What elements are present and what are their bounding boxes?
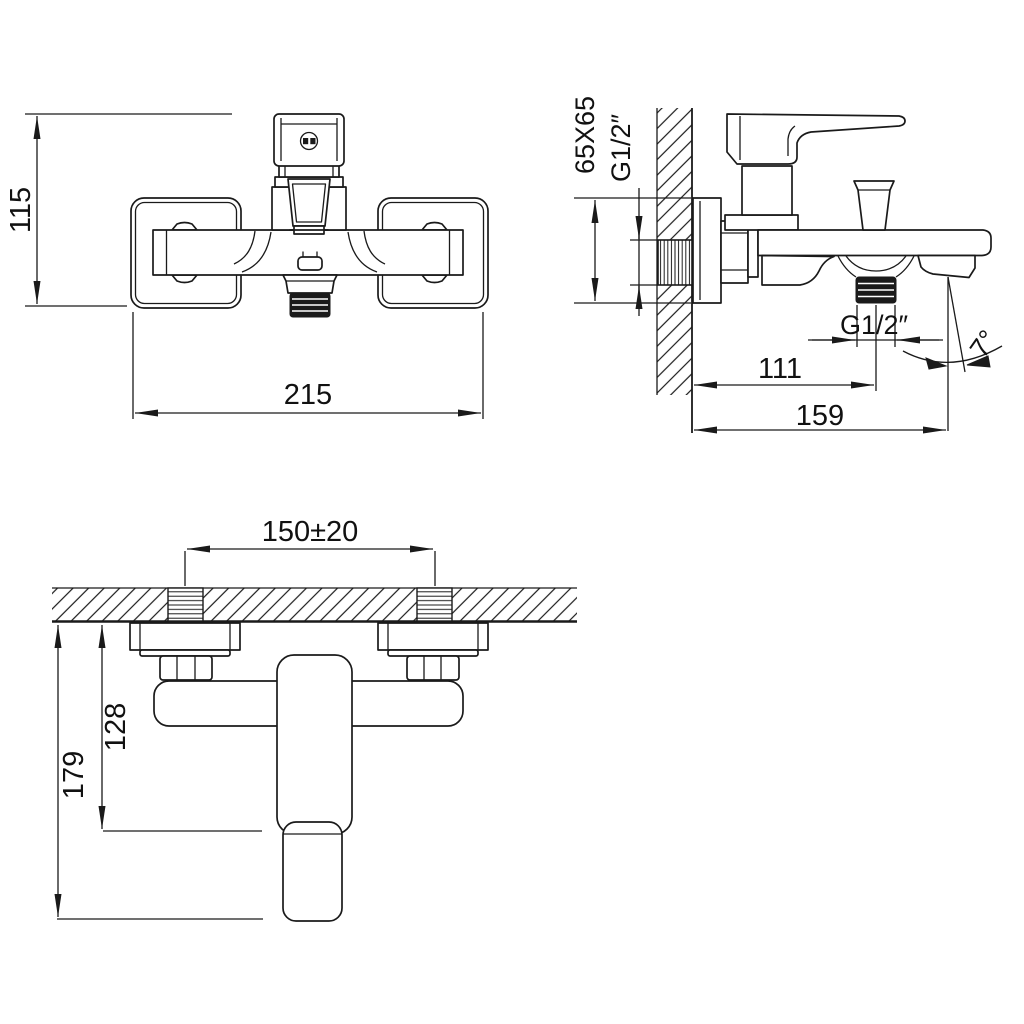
dimension-inlet-thread: G1/2″ (606, 114, 657, 316)
dimension-hole-spacing: 150±20 (185, 516, 435, 586)
dim-label-159: 159 (796, 400, 844, 432)
inlet-pipe-right-top (417, 588, 452, 621)
dimension-spout-angle: 7° (903, 277, 1003, 431)
escutcheon-side (693, 198, 721, 303)
dim-label-215: 215 (284, 379, 332, 411)
inlet-pipe-threaded (658, 240, 692, 285)
mount-nut-left-top (160, 656, 212, 680)
front-view: 115 215 (5, 114, 488, 419)
mount-nut-right-top (407, 656, 459, 680)
technical-drawing-page: 115 215 (0, 0, 1024, 1024)
handle-top-view (277, 655, 352, 921)
dim-label-7deg: 7° (964, 325, 1003, 363)
dimension-wall-to-spout: 159 (694, 400, 946, 432)
diverter-funnel-side (838, 256, 914, 303)
dim-label-inlet-g12: G1/2″ (606, 114, 636, 183)
spout-tip-side (918, 256, 975, 278)
shower-outlet-front (283, 275, 337, 317)
dim-label-115: 115 (5, 187, 37, 233)
top-view: 150±20 128 179 (52, 516, 577, 921)
dim-label-150-20: 150±20 (262, 516, 359, 548)
wall-plate-left-top (130, 623, 240, 656)
handle-top-front (274, 114, 344, 166)
handle-lever-side (727, 114, 905, 164)
wall-plate-right-top (378, 623, 488, 656)
side-view: 65X65 G1/2″ G1/2″ 111 159 (570, 96, 1003, 433)
dimension-front-width: 215 (133, 312, 483, 419)
dim-label-65x65: 65X65 (570, 96, 600, 174)
dim-label-128: 128 (100, 703, 132, 751)
dim-label-179: 179 (58, 751, 90, 799)
diverter-knob-side (854, 181, 894, 230)
dim-label-111: 111 (758, 353, 802, 385)
wall-section-top (52, 588, 577, 622)
handle-lever-front (288, 179, 330, 234)
inlet-pipe-left-top (168, 588, 203, 621)
faucet-dimension-drawing: 115 215 (0, 0, 1024, 1024)
dim-label-outlet-g12: G1/2″ (840, 310, 909, 340)
